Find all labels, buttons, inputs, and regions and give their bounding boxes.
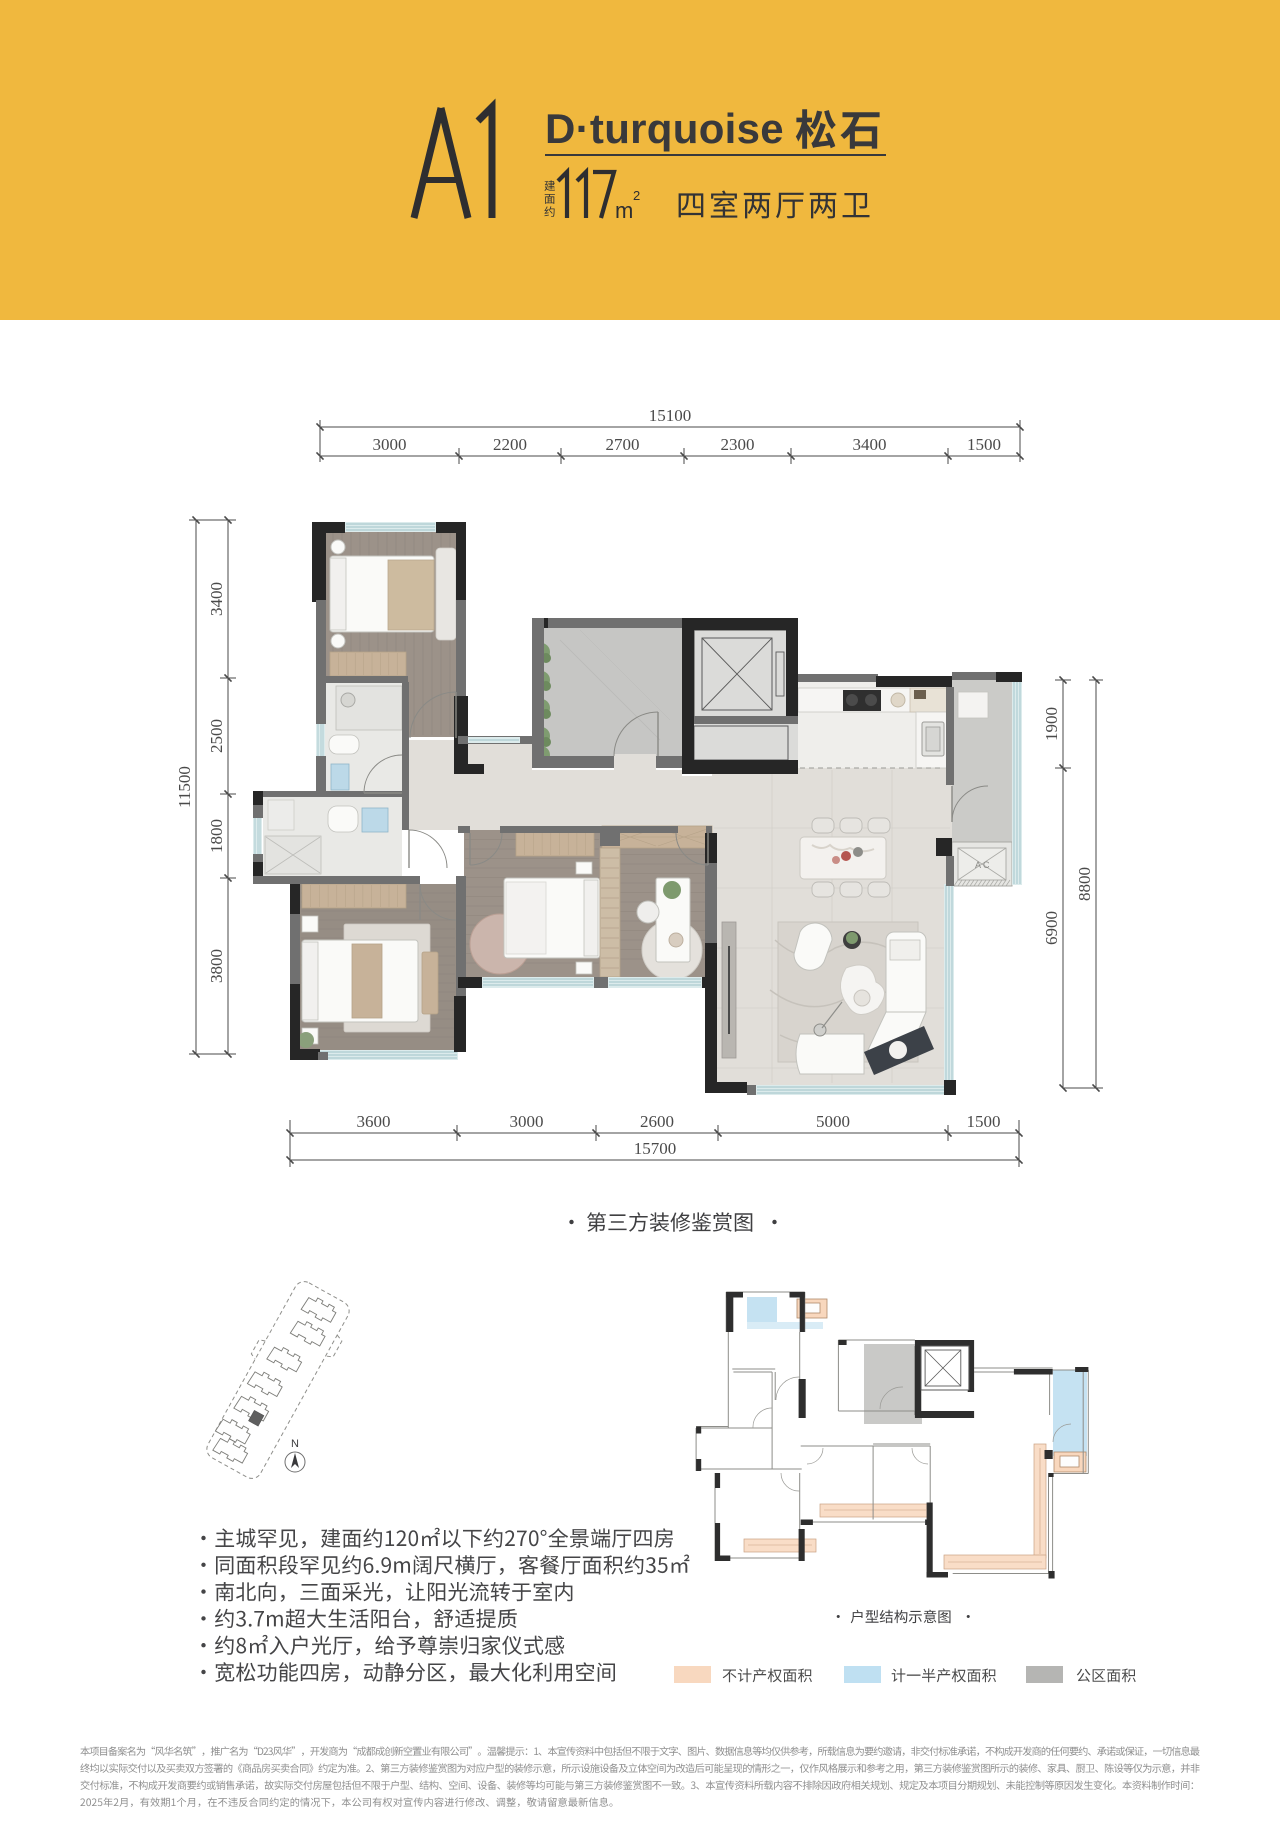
svg-text:8800: 8800 — [1075, 867, 1094, 901]
svg-text:3000: 3000 — [373, 435, 407, 454]
svg-text:1500: 1500 — [967, 1112, 1001, 1131]
svg-text:2600: 2600 — [640, 1112, 674, 1131]
svg-text:A C: A C — [975, 860, 990, 870]
svg-text:m: m — [615, 198, 633, 223]
svg-text:3800: 3800 — [207, 949, 226, 983]
svg-text:D·turquoise: D·turquoise — [545, 105, 784, 152]
svg-text:2200: 2200 — [493, 435, 527, 454]
svg-text:1900: 1900 — [1042, 707, 1061, 741]
svg-text:11500: 11500 — [175, 766, 194, 808]
svg-text:3400: 3400 — [853, 435, 887, 454]
svg-text:3600: 3600 — [357, 1112, 391, 1131]
svg-text:3000: 3000 — [510, 1112, 544, 1131]
svg-text:2: 2 — [633, 188, 640, 203]
svg-text:3400: 3400 — [207, 582, 226, 616]
svg-text:2300: 2300 — [721, 435, 755, 454]
svg-text:6900: 6900 — [1042, 911, 1061, 945]
svg-text:5000: 5000 — [816, 1112, 850, 1131]
svg-text:15700: 15700 — [634, 1139, 677, 1158]
svg-text:15100: 15100 — [649, 406, 692, 425]
svg-text:2700: 2700 — [606, 435, 640, 454]
svg-text:1800: 1800 — [207, 819, 226, 853]
svg-text:2500: 2500 — [207, 719, 226, 753]
svg-text:N: N — [291, 1438, 299, 1450]
svg-text:1500: 1500 — [967, 435, 1001, 454]
